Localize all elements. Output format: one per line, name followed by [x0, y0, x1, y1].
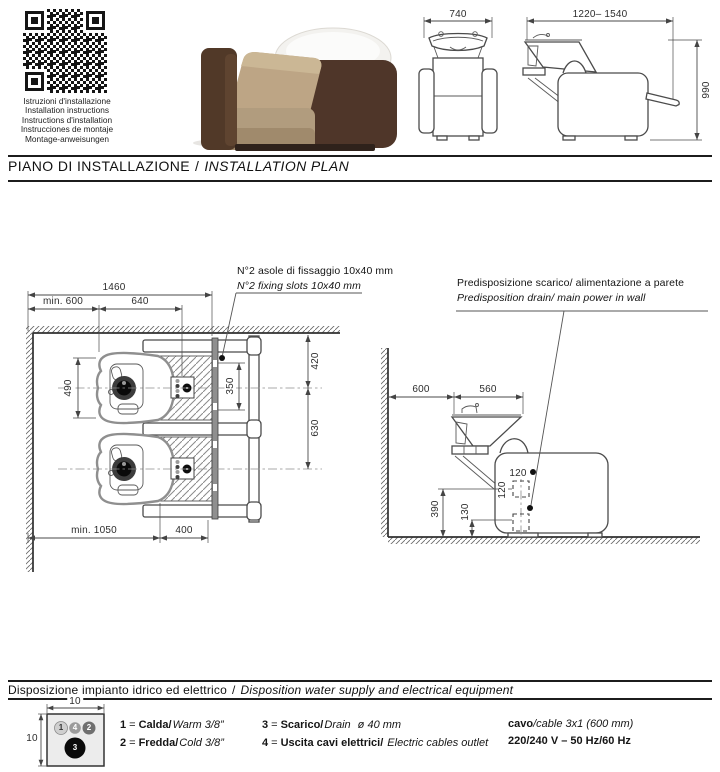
frame-cap: [247, 502, 261, 520]
fixing-slot-marker: [219, 355, 225, 361]
legend-num: 3: [262, 719, 268, 731]
dim-elev-zone-w: 120: [507, 469, 528, 479]
dim-elev-drain: 130: [461, 501, 471, 522]
chair-body-profile: [495, 439, 608, 537]
power-point-marker: [530, 469, 536, 475]
legend-label-en: Cold 3/8”: [179, 737, 224, 749]
legend-label-it: Calda/: [139, 719, 172, 731]
annotation-fixing-it: N°2 asole di fissaggio 10x40 mm: [237, 264, 393, 279]
qr-caption-line: Montage-anweisungen: [2, 135, 132, 144]
wall-hatch-top: [26, 326, 340, 333]
frame-cap: [247, 420, 261, 438]
legend-num: 1: [120, 719, 126, 731]
point-label-3: 3: [73, 744, 77, 752]
legend-label-en: Drain: [324, 719, 350, 731]
dim-plan-total: 1460: [100, 283, 127, 293]
legend-eq: =: [129, 719, 135, 731]
frame-rail: [143, 505, 249, 517]
annotation-wall-it: Predisposizione scarico/ alimentazione a…: [457, 276, 684, 291]
front-view-drawing: [419, 17, 497, 140]
title-rule-top: [8, 155, 712, 157]
dim-side-height: 990: [702, 79, 712, 100]
wall-hatch: [381, 348, 388, 537]
annotation-wall-en: Predisposition drain/ main power in wall: [457, 291, 684, 306]
photo-armrest: [201, 48, 237, 150]
wall-hatch-left: [26, 333, 33, 572]
photo-base: [235, 144, 375, 151]
legend-diameter: ø 40 mm: [358, 719, 401, 731]
drain-point-marker: [527, 505, 533, 511]
dim-elev-basin: 560: [477, 385, 498, 395]
product-photo-backwash-chair: [165, 0, 415, 152]
dim-front-width: 740: [447, 10, 468, 20]
installation-plan-title: PIANO DI INSTALLAZIONE/INSTALLATION PLAN: [8, 158, 349, 174]
legend-eq: =: [271, 737, 277, 749]
cable-spec: cavo/cable 3x1 (600 mm): [508, 718, 633, 730]
dim-plan-min-depth: min. 1050: [69, 526, 119, 536]
point-label-4: 4: [73, 724, 77, 732]
qr-caption: Istruzioni d'installazione Installation …: [2, 97, 132, 144]
overall-dimension-views: [410, 0, 720, 155]
frame-cap: [247, 337, 261, 355]
cable-label-it: cavo: [508, 718, 533, 730]
legend-eq: =: [271, 719, 277, 731]
dim-util-height: 10: [24, 734, 40, 744]
floor-hatch: [388, 537, 700, 544]
point-label-2: 2: [87, 724, 91, 732]
dim-plan-chair: 640: [129, 297, 150, 307]
legend-label-it: Uscita cavi elettrici/: [281, 737, 384, 749]
point-label-1: 1: [59, 724, 63, 732]
legend-item-cold: 2=Fredda/Cold 3/8”: [120, 737, 224, 749]
side-view-drawing: [523, 17, 702, 140]
cable-label-en: /cable 3x1 (600 mm): [533, 718, 633, 730]
title-italian: PIANO DI INSTALLAZIONE: [8, 158, 190, 174]
frame-rail: [143, 423, 249, 435]
title-english: INSTALLATION PLAN: [204, 158, 349, 174]
frame-rail: [143, 340, 249, 352]
title-separator: /: [195, 158, 199, 174]
dim-elev-wall: 600: [410, 385, 431, 395]
dim-plan-seat: 490: [64, 377, 74, 398]
dim-side-width: 1220– 1540: [571, 10, 630, 20]
legend-label-it: Scarico/: [281, 719, 324, 731]
annotation-fixing-en: N°2 fixing slots 10x40 mm: [237, 279, 393, 294]
dim-plan-centers: 630: [311, 417, 321, 438]
annotation-fixing-slots: N°2 asole di fissaggio 10x40 mm N°2 fixi…: [237, 264, 393, 294]
installation-plan-drawing: [0, 185, 720, 655]
utilities-rule-top: [8, 680, 712, 682]
utilities-title-english: Disposition water supply and electrical …: [241, 683, 514, 697]
qr-code: [20, 6, 110, 96]
annotation-wall-predisposition: Predisposizione scarico/ alimentazione a…: [457, 276, 684, 306]
legend-item-cables: 4=Uscita cavi elettrici/Electric cables …: [262, 737, 488, 749]
legend-item-warm: 1=Calda/Warm 3/8”: [120, 719, 224, 731]
dim-plan-wall-center: 420: [311, 350, 321, 371]
dim-plan-min-wall: min. 600: [41, 297, 85, 307]
legend-item-drain: 3=Scarico/Drainø 40 mm: [262, 719, 401, 731]
dim-util-width: 10: [67, 697, 83, 707]
legend-label-it: Fredda/: [139, 737, 179, 749]
legend-eq: =: [129, 737, 135, 749]
dim-plan-slots: 350: [226, 375, 236, 396]
installation-plan-page: Istruzioni d'installazione Installation …: [0, 0, 720, 772]
dim-elev-power: 390: [431, 498, 441, 519]
dim-elev-zone-h: 120: [498, 479, 508, 500]
legend-label-en: Electric cables outlet: [387, 737, 488, 749]
utilities-title: Disposizione impianto idrico ed elettric…: [8, 683, 513, 697]
legend-num: 4: [262, 737, 268, 749]
dim-plan-frame: 400: [173, 526, 194, 536]
utilities-title-italian: Disposizione impianto idrico ed elettric…: [8, 683, 227, 697]
utilities-title-separator: /: [232, 683, 236, 697]
title-rule-bottom: [8, 180, 712, 182]
legend-label-en: Warm 3/8”: [173, 719, 224, 731]
power-spec: 220/240 V – 50 Hz/60 Hz: [508, 735, 631, 747]
legend-num: 2: [120, 737, 126, 749]
